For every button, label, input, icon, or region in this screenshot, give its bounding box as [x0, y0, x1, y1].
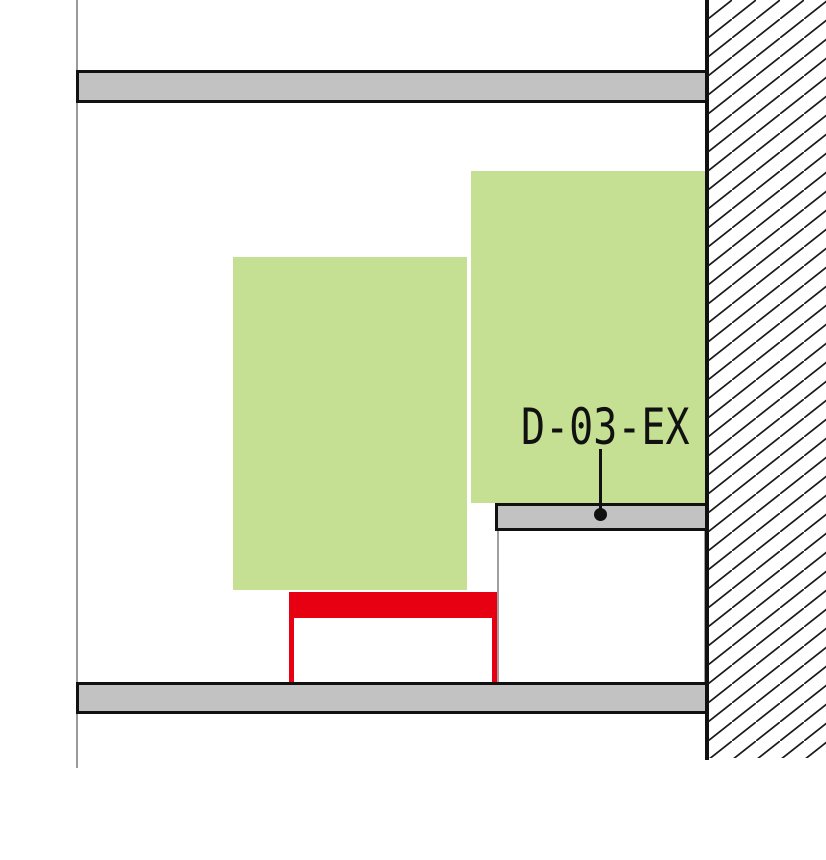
section-detail-drawing: D-03-EX: [0, 0, 826, 860]
datum-line: [76, 0, 78, 768]
red-counter-top: [289, 592, 497, 618]
top-rail: [76, 70, 708, 103]
leader-line: [599, 449, 602, 514]
bottom-rail: [76, 682, 708, 714]
recess-box: [497, 531, 706, 682]
leader-dot-icon: [594, 508, 607, 521]
red-counter-leg-left: [289, 618, 294, 682]
part-label: D-03-EX: [521, 402, 690, 452]
panel-left: [233, 257, 467, 590]
wall-hatch-icon: [708, 0, 826, 758]
red-counter-leg-right: [492, 618, 497, 682]
